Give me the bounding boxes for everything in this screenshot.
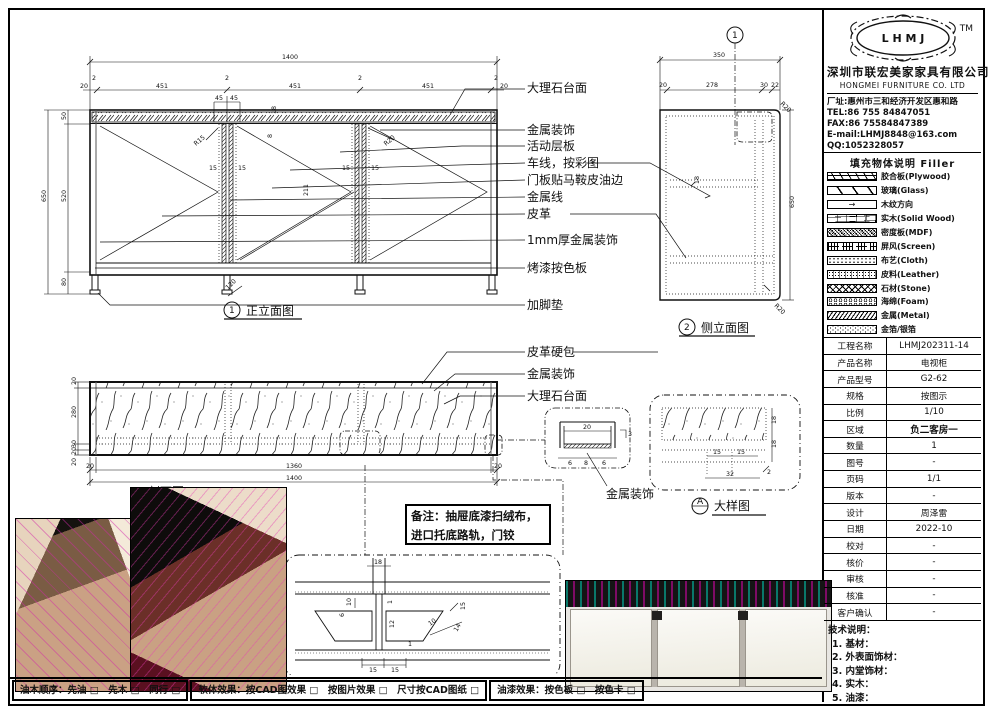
dim-text: 45 [215, 95, 223, 102]
tech-note-item: 3. 内堂饰材： [832, 665, 977, 679]
table-row: 区域负二客房一 [824, 421, 981, 438]
row-label: 设计 [824, 504, 887, 520]
table-row: 客户确认- [824, 604, 981, 621]
legend-label: 石材(Stone) [881, 283, 931, 294]
material-legend: 填充物体说明 Filler 胶合板(Plywood) 玻璃(Glass) 木纹方… [824, 153, 981, 338]
foam-pattern-swatch [827, 297, 877, 306]
row-label: 版本 [824, 488, 887, 504]
row-label: 核准 [824, 588, 887, 604]
row-value: 负二客房一 [887, 422, 981, 436]
legend-label: 金箔/银箔 [881, 324, 916, 335]
dim-text: 6 [568, 460, 572, 467]
dim-text: 18 [271, 106, 278, 114]
row-label: 页码 [824, 471, 887, 487]
row-value: 按图示 [887, 389, 981, 402]
dim-text: 451 [156, 83, 168, 90]
table-row: 版本- [824, 488, 981, 505]
company-tel: TEL:86 755 84847051 [827, 108, 978, 119]
photo-cabinet-top [566, 581, 831, 607]
dim-text: 2 [767, 469, 771, 476]
legend-label: 皮料(Leather) [881, 269, 939, 280]
row-label: 客户确认 [824, 604, 887, 620]
row-label: 产品名称 [824, 355, 887, 371]
row-label: 核价 [824, 554, 887, 570]
company-name-en: HONGMEI FURNITURE CO. LTD [827, 81, 978, 94]
row-value: 1 [887, 441, 981, 451]
detail-photo-1 [15, 518, 139, 692]
legend-item: 玻璃(Glass) [827, 184, 978, 198]
dim-text: 1400 [286, 475, 302, 482]
solid-wood-pattern-swatch [827, 214, 877, 223]
legend-item: 密度板(MDF) [827, 226, 978, 240]
footer-order-options: 油木顺序：先油 □ 先木 □ 同行 □ [12, 680, 188, 701]
row-value: 周泽雷 [887, 506, 981, 519]
dim-text: 20 [494, 463, 502, 470]
legend-label: 屏风(Screen) [881, 241, 935, 252]
dim-text: R20 [773, 302, 787, 316]
trademark-label: TM [960, 24, 973, 34]
legend-label: 实木(Solid Wood) [881, 213, 955, 224]
dim-text: 10 [346, 598, 353, 606]
row-value: 1/1 [887, 474, 981, 484]
tech-note-item: 4. 实木： [832, 678, 977, 692]
label: 大理石台面 [527, 80, 587, 95]
label: 皮革 [527, 207, 551, 221]
legend-label: 玻璃(Glass) [881, 185, 929, 196]
row-label: 比例 [824, 405, 887, 421]
dim-text: 650 [789, 196, 796, 208]
label: 大理石台面 [527, 388, 587, 403]
company-email: E-mail:LHMJ8848@163.com [827, 130, 978, 141]
legend-item: 布艺(Cloth) [827, 253, 978, 267]
dim-text: 18 [694, 176, 701, 184]
row-value: - [887, 491, 981, 501]
footer-bar: 油木顺序：先油 □ 先木 □ 同行 □ 软体效果：按CAD图效果 □ 按图片效果… [10, 677, 822, 702]
row-value: - [887, 574, 981, 584]
row-value: 2022-10 [887, 524, 981, 534]
dim-text: 20 [80, 83, 88, 90]
company-qq: QQ:1052328057 [827, 141, 978, 152]
label: 金属装饰 [527, 122, 575, 137]
view-number: A [697, 497, 704, 507]
stone-pattern-swatch [827, 284, 877, 293]
title-block-panel: TM L H M J 深圳市联宏美家家具有限公司 HONGMEI FURNITU… [824, 10, 981, 700]
dim-text: 650 [41, 190, 48, 202]
dim-text: 3 [628, 431, 632, 438]
label: 金属装饰 [527, 366, 575, 381]
row-value: 电视柜 [887, 356, 981, 369]
legend-item: 皮料(Leather) [827, 267, 978, 281]
legend-item: 金属(Metal) [827, 309, 978, 323]
row-label: 工程名称 [824, 338, 887, 354]
row-label: 日期 [824, 521, 887, 537]
company-logo-icon: L H M J [843, 12, 963, 64]
foil-pattern-swatch [827, 325, 877, 334]
view-number: 1 [229, 306, 235, 316]
table-row: 校对- [824, 538, 981, 555]
joint-detail-view [285, 455, 563, 675]
tech-notes-title: 技术说明： [828, 624, 977, 638]
legend-label: 密度板(MDF) [881, 227, 932, 238]
dim-text: 520 [61, 190, 68, 202]
legend-label: 海绵(Foam) [881, 296, 929, 307]
table-row: 产品型号G2-62 [824, 371, 981, 388]
dim-text: 2 [494, 75, 498, 82]
row-label: 规格 [824, 388, 887, 404]
company-fax: FAX:86 75584847389 [827, 119, 978, 130]
view-title: 大样图 [714, 498, 750, 513]
info-table: 工程名称LHMJ202311-14 产品名称电视柜 产品型号G2-62 规格按图… [824, 338, 981, 621]
metal-trim-detail [497, 408, 630, 486]
dim-text: 120 [224, 278, 237, 291]
remark-note-box: 备注：抽屉底漆扫绒布， 进口托底路轨，门铰 [405, 504, 551, 545]
side-view-title: 2 侧立面图 [679, 319, 755, 336]
dim-text: R15 [193, 134, 207, 147]
metal-pattern-swatch [827, 311, 877, 320]
photo-door [657, 609, 739, 687]
company-address: 厂址:惠州市三和经济开发区惠和路 [827, 97, 978, 108]
label: 活动层板 [527, 139, 575, 153]
photo-door [570, 609, 652, 687]
row-value: - [887, 557, 981, 567]
row-value: G2-62 [887, 374, 981, 384]
label: 1mm厚金属装饰 [527, 232, 618, 247]
tech-note-item: 5. 油漆： [832, 692, 977, 706]
tech-note-item: 1. 基材： [832, 638, 977, 652]
wood-grain-arrow-swatch [827, 200, 877, 209]
dim-text: 80 [61, 278, 68, 286]
table-row: 日期2022-10 [824, 521, 981, 538]
table-row: 页码1/1 [824, 471, 981, 488]
dim-text: 14 [453, 623, 463, 633]
photo-hinge [652, 611, 662, 620]
drawing-sheet: 1400 2 2 2 2 20 20 451 451 451 45 45 650… [0, 0, 991, 710]
dim-text: 20 [86, 463, 94, 470]
dim-text: 1400 [282, 54, 298, 61]
dim-text: 18 [771, 440, 778, 448]
dim-text: R20 [383, 134, 397, 147]
label: 烤漆按色板 [527, 260, 587, 275]
dim-text: 451 [422, 83, 434, 90]
row-label: 产品型号 [824, 371, 887, 387]
dim-text: 6 [339, 613, 346, 617]
dim-text: 15 [371, 165, 379, 172]
front-dimensions [44, 56, 504, 296]
dim-text: 20 [659, 82, 667, 89]
row-label: 图号 [824, 454, 887, 470]
dim-text: 15 [238, 165, 246, 172]
label: 加脚垫 [527, 297, 563, 312]
row-label: 区域 [824, 421, 887, 437]
view-title: 侧立面图 [701, 320, 749, 335]
row-value: 1/10 [887, 407, 981, 417]
dim-text: 2 [92, 75, 96, 82]
legend-item: 屏风(Screen) [827, 239, 978, 253]
dim-text: 30 [71, 440, 78, 448]
legend-label: 胶合板(Plywood) [881, 171, 950, 182]
dim-text: 2 [225, 75, 229, 82]
footer-effect-options: 软体效果：按CAD图效果 □ 按图片效果 □ 尺寸按CAD图纸 □ [190, 680, 487, 701]
tech-notes: 技术说明： 1. 基材： 2. 外表面饰材： 3. 内堂饰材： 4. 实木： 5… [824, 621, 981, 708]
legend-label: 木纹方向 [881, 199, 913, 210]
photo-hinge [738, 611, 748, 620]
row-value: LHMJ202311-14 [887, 341, 981, 351]
table-row: 设计周泽雷 [824, 504, 981, 521]
detail-photo-2 [130, 487, 287, 692]
label: 金属线 [527, 189, 563, 204]
note-line-2: 进口托底路轨，门铰 [411, 526, 545, 545]
leather-pattern-swatch [827, 270, 877, 279]
photo-cabinet-doors [570, 609, 827, 687]
legend-item: 木纹方向 [827, 198, 978, 212]
dim-text: 451 [289, 83, 301, 90]
row-label: 数量 [824, 438, 887, 454]
dim-text: 20 [71, 447, 78, 455]
company-block: TM L H M J 深圳市联宏美家家具有限公司 HONGMEI FURNITU… [824, 10, 981, 153]
dim-text: 15 [391, 667, 399, 674]
product-photo [565, 580, 832, 692]
legend-item: 金箔/银箔 [827, 323, 978, 337]
dim-text: 280 [71, 406, 78, 418]
table-row: 数量1 [824, 438, 981, 455]
row-label: 校对 [824, 538, 887, 554]
glass-pattern-swatch [827, 186, 877, 195]
dim-text: 8 [584, 460, 588, 467]
dim-text: 20 [71, 458, 78, 466]
table-row: 核价- [824, 554, 981, 571]
cut-mark-number: 1 [732, 31, 738, 41]
legend-title: 填充物体说明 Filler [827, 155, 978, 170]
table-row: 产品名称电视柜 [824, 355, 981, 372]
dim-text: 350 [713, 52, 725, 59]
table-row: 比例1/10 [824, 405, 981, 422]
dim-text: 10 [427, 617, 438, 627]
table-row: 核准- [824, 588, 981, 605]
tech-note-item: 2. 外表面饰材： [832, 651, 977, 665]
detail-a-title: A 大样图 [692, 497, 766, 515]
legend-item: 实木(Solid Wood) [827, 212, 978, 226]
mdf-pattern-swatch [827, 228, 877, 237]
dim-text: 32 [726, 471, 734, 478]
section-view [90, 382, 502, 455]
dim-text: 211 [303, 184, 310, 196]
table-row: 规格按图示 [824, 388, 981, 405]
dim-text: 15 [737, 449, 745, 456]
dim-text: 45 [230, 95, 238, 102]
table-row: 工程名称LHMJ202311-14 [824, 338, 981, 355]
label: 门板贴马鞍皮油边 [527, 172, 623, 187]
dim-text: 2 [358, 75, 362, 82]
table-row: 图号- [824, 454, 981, 471]
front-view-title: 1 正立面图 [224, 302, 302, 319]
view-number: 2 [684, 323, 690, 333]
photo-door [745, 609, 827, 687]
legend-label: 布艺(Cloth) [881, 255, 928, 266]
legend-item: 海绵(Foam) [827, 295, 978, 309]
dim-text: 15 [460, 602, 467, 610]
dim-text: 1 [387, 600, 394, 604]
front-elevation-view [90, 110, 497, 294]
dim-text: 8 [267, 134, 274, 138]
side-elevation-view [660, 27, 780, 300]
dim-text: 6 [602, 460, 606, 467]
table-row: 审核- [824, 571, 981, 588]
dim-text: 30 [760, 82, 768, 89]
dim-text: 20 [71, 377, 78, 385]
cloth-pattern-swatch [827, 256, 877, 265]
dim-text: 12 [389, 620, 396, 628]
legend-item: 胶合板(Plywood) [827, 170, 978, 184]
plywood-pattern-swatch [827, 172, 877, 181]
note-line-1: 备注：抽屉底漆扫绒布， [411, 507, 545, 526]
footer-paint-options: 油漆效果：按色板 □ 按色卡 □ [489, 680, 644, 701]
row-value: - [887, 607, 981, 617]
dim-text: 18 [771, 416, 778, 424]
dim-text: 22 [771, 82, 779, 89]
dim-text: 15 [209, 165, 217, 172]
dim-text: 1360 [286, 463, 302, 470]
dim-text: 15 [713, 449, 721, 456]
legend-label: 金属(Metal) [881, 310, 930, 321]
dim-text: 15 [369, 667, 377, 674]
row-label: 审核 [824, 571, 887, 587]
dim-text: 1 [408, 641, 412, 648]
screen-pattern-swatch [827, 242, 877, 251]
dim-text: 18 [374, 559, 382, 566]
row-value: - [887, 541, 981, 551]
row-value: - [887, 590, 981, 600]
label: 金属装饰 [606, 486, 654, 501]
legend-item: 石材(Stone) [827, 281, 978, 295]
logo-text: L H M J [881, 32, 924, 45]
dim-text: 50 [61, 112, 68, 120]
company-name-cn: 深圳市联宏美家家具有限公司 [827, 64, 978, 80]
dim-text: 278 [706, 82, 718, 89]
label: 车线，按彩图 [527, 155, 599, 170]
row-value: - [887, 457, 981, 467]
dim-text: 20 [583, 424, 591, 431]
label: 皮革硬包 [527, 345, 575, 359]
